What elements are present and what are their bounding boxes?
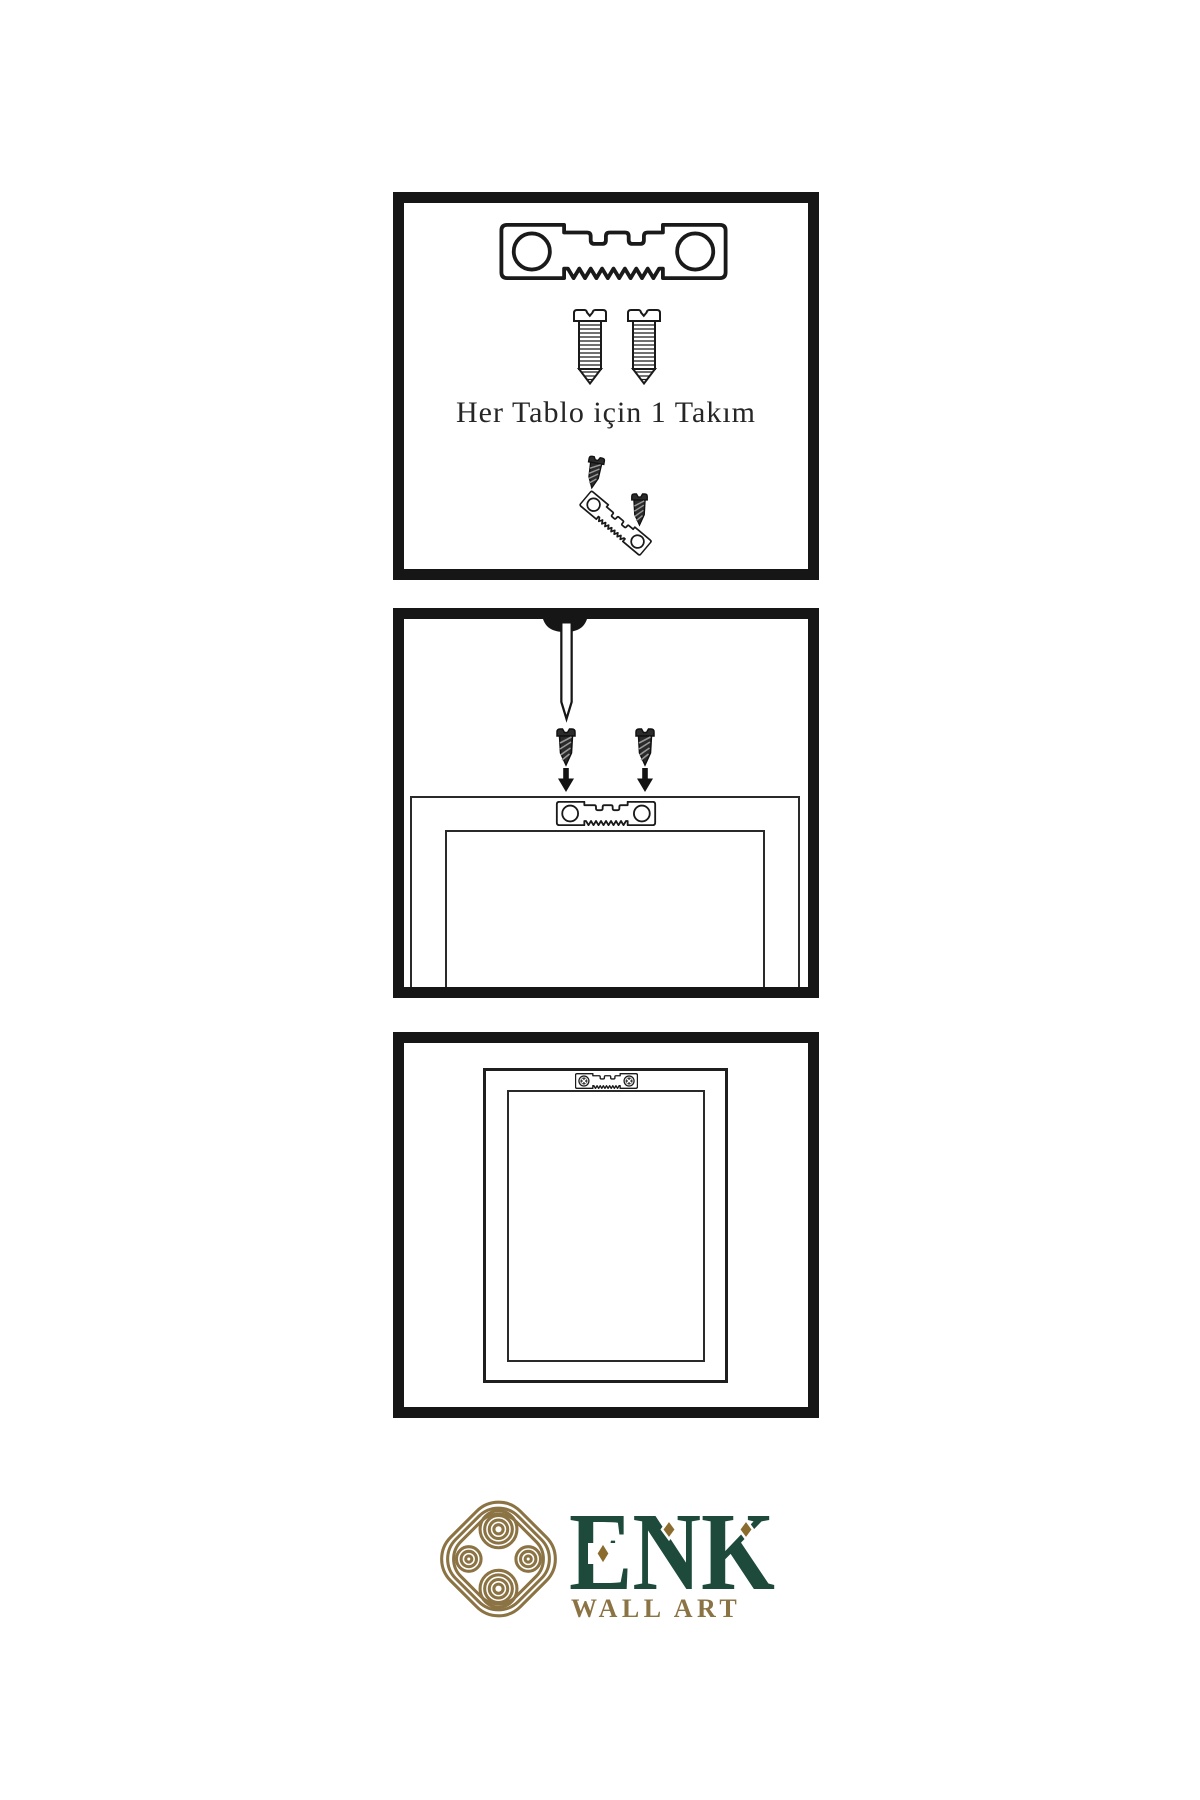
screw-icon — [571, 307, 609, 385]
frame-front-inner-edge — [507, 1090, 705, 1362]
dark-screw-icon — [634, 727, 656, 767]
panel-step-hang — [393, 1032, 819, 1418]
down-arrow-icon — [637, 768, 653, 792]
interlocking-knot-icon — [437, 1488, 560, 1630]
wall-nail-icon — [559, 619, 574, 725]
dark-screw-icon — [555, 727, 577, 767]
screw-icon — [625, 307, 663, 385]
panel-step-attach — [393, 608, 819, 998]
logo-text-enk: ENK — [568, 1514, 778, 1594]
dark-screw-icon — [582, 454, 607, 492]
panel-hardware-kit: Her Tablo için 1 Takım — [393, 192, 819, 580]
dark-screw-icon — [630, 492, 649, 527]
sawtooth-hanger-icon — [497, 223, 730, 280]
frame-back-inner-edge — [445, 830, 765, 998]
instruction-sheet: Her Tablo için 1 Takım — [0, 0, 1200, 1800]
kit-caption: Her Tablo için 1 Takım — [404, 396, 808, 430]
sawtooth-hanger-icon — [555, 801, 657, 826]
mounted-sawtooth-hanger-icon — [575, 1073, 638, 1089]
logo-tagline: WALL ART — [571, 1594, 791, 1624]
down-arrow-icon — [558, 768, 574, 792]
